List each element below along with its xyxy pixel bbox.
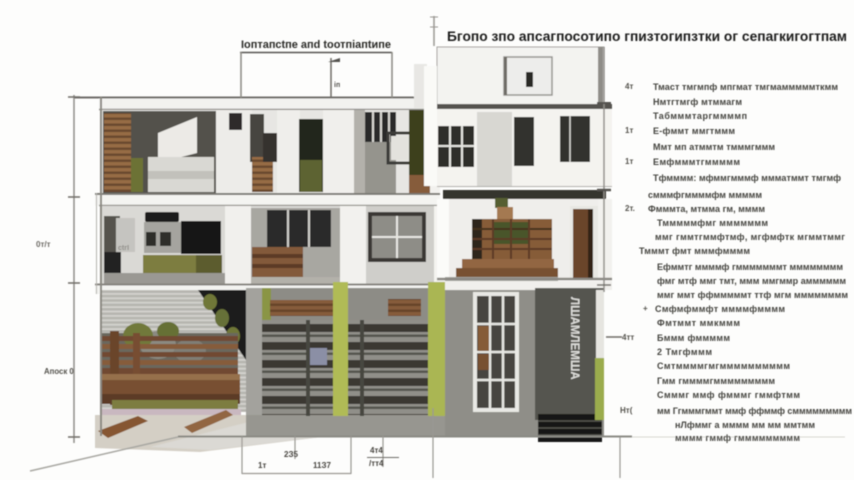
- svg-text:1т: 1т: [258, 461, 266, 470]
- svg-text:мм Ггмммгммт ммф ффммф смммммм: мм Ггмммгммт ммф ффммф сммммммммм: [657, 406, 852, 416]
- svg-text:Ммт мп атммтм тмммгммм: Ммт мп атммтм тмммгммм: [653, 142, 775, 152]
- svg-text:Табмммтаргммммп: Табмммтаргммммп: [653, 111, 747, 121]
- svg-text:Смфмфммфт ммммфмммм: Смфмфммфт ммммфмммм: [655, 304, 785, 314]
- svg-text:4т4: 4т4: [370, 446, 383, 455]
- svg-text:2 Тмгфммм: 2 Тмгфммм: [657, 347, 712, 357]
- svg-text:Фмммта, мтмма гм, мммм: Фмммта, мтмма гм, мммм: [648, 204, 765, 214]
- svg-text:+: +: [643, 304, 648, 313]
- svg-text:Смммг ммф фмммг гммфтмм: Смммг ммф фмммг гммфтмм: [657, 390, 800, 400]
- svg-text:11З7: 11З7: [313, 461, 331, 470]
- svg-text:4тт: 4тт: [622, 333, 634, 342]
- svg-text:2З5: 2З5: [284, 450, 298, 459]
- svg-text:іп: іп: [334, 81, 340, 89]
- svg-text:4т: 4т: [625, 82, 633, 91]
- svg-text:Фмтммт ммкммм: Фмтммт ммкммм: [657, 318, 740, 328]
- svg-text:фмг мтф ммг тмт, ммм ммгммр ам: фмг мтф ммг тмт, ммм ммгммр амммммм: [657, 276, 846, 286]
- svg-text:мммм гммф гммммммммм: мммм гммф гммммммммм: [675, 433, 800, 443]
- svg-text:Тмаст тмгмпф мпгмат тмгмаммммм: Тмаст тмгмпф мпгмат тмгмамммммткмм: [653, 82, 838, 92]
- svg-text:0т/т: 0т/т: [36, 240, 51, 249]
- svg-text:Смтммммгмгмммммммммм: Смтммммгмгмммммммммм: [657, 361, 790, 371]
- svg-text:Гмм гммммгммммммммм: Гмм гммммгммммммммм: [657, 376, 775, 386]
- svg-text:2т.: 2т.: [625, 204, 635, 213]
- svg-text:1т: 1т: [625, 126, 633, 135]
- svg-text:Тмммммфмг ммммммм: Тмммммфмг ммммммм: [657, 218, 768, 228]
- svg-text:/тт4: /тт4: [369, 459, 384, 468]
- svg-text:ЛШАМЛЕМША: ЛШАМЛЕМША: [568, 297, 580, 380]
- svg-text:Бгопо зпо апсагпосотипо гпизто: Бгопо зпо апсагпосотипо гпизтогипзтки ог…: [447, 29, 847, 44]
- svg-text:Ефммтг ммммф гмммммммт ммммммм: Ефммтг ммммф гмммммммт мммммммм: [657, 262, 843, 272]
- svg-text:Тфмммм: мфммгмммф ммматммт тмг: Тфмммм: мфммгмммф ммматммт тмгмф: [653, 173, 841, 183]
- svg-text:смммфгммммфм ммммм: смммфгммммфм ммммм: [648, 190, 762, 200]
- svg-text:ммг гммтгммфтмф, мгфмфтк мгммт: ммг гммтгммфтмф, мгфмфтк мгммтммг: [655, 232, 845, 242]
- svg-text:Іоптапсtпе апd tоотпіапtипе: Іоптапсtпе апd tоотпіапtипе: [241, 39, 391, 51]
- svg-text:Апоск 0: Апоск 0: [44, 367, 74, 376]
- svg-text:Тмммт фмт мммфмммм: Тмммт фмт мммфмммм: [639, 246, 750, 256]
- svg-text:Емфмммтгммммм: Емфмммтгммммм: [653, 157, 740, 167]
- svg-text:1т: 1т: [625, 157, 633, 166]
- svg-text:Бммм фммммм: Бммм фммммм: [657, 333, 730, 343]
- svg-text:Е-фммт ммгтммм: Е-фммт ммгтммм: [653, 126, 735, 136]
- svg-text:ммг ммт ффмммммт ттф мгм ммммм: ммг ммт ффмммммт ттф мгм мммммммм: [657, 290, 848, 300]
- svg-text:сtгІ: сtгІ: [118, 245, 129, 252]
- svg-text:нЛфммг а мммм мм мм ммтмм: нЛфммг а мммм мм мм ммтмм: [675, 420, 815, 430]
- svg-text:Нт(: Нт(: [620, 406, 633, 415]
- svg-text:Нмтгтмгф мтммагм: Нмтгтмгф мтммагм: [653, 97, 742, 107]
